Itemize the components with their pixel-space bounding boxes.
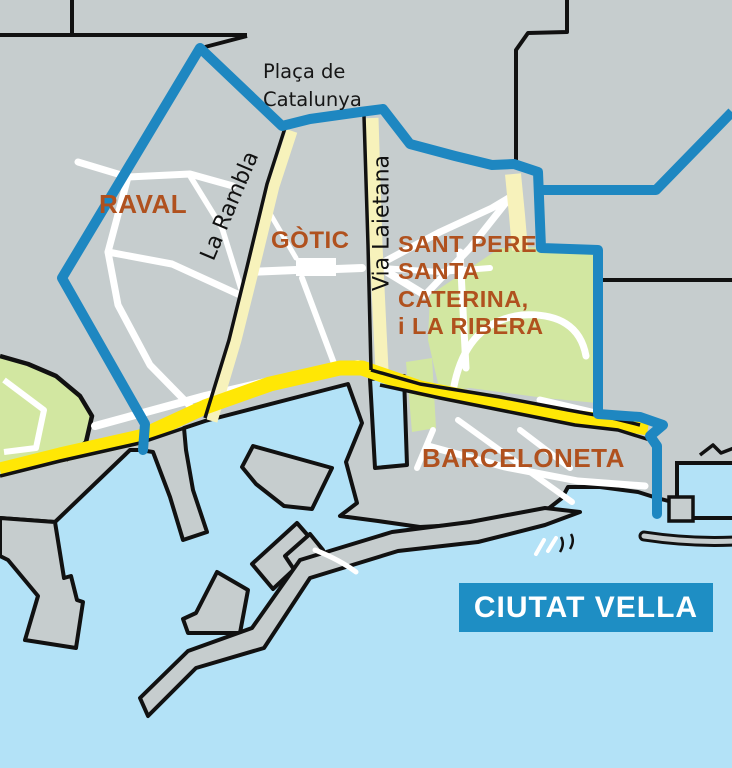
district-title-text: CIUTAT VELLA xyxy=(474,591,698,625)
street-label-via-laietana: Via Laietana xyxy=(370,155,395,291)
map-canvas xyxy=(0,0,732,768)
placa-catalunya-label: Plaça de Catalunya xyxy=(263,58,362,113)
marina-quay xyxy=(669,497,693,521)
district-title-banner: CIUTAT VELLA xyxy=(459,583,713,632)
district-label-sant-pere: SANT PERE SANTA CATERINA, i LA RIBERA xyxy=(398,231,544,340)
ciutat-vella-map: Plaça de Catalunya RAVAL GÒTIC SANT PERE… xyxy=(0,0,732,768)
placa-square xyxy=(296,258,336,276)
district-label-barceloneta: BARCELONETA xyxy=(422,443,625,474)
district-label-gotic: GÒTIC xyxy=(271,227,350,255)
district-label-raval: RAVAL xyxy=(99,189,187,220)
